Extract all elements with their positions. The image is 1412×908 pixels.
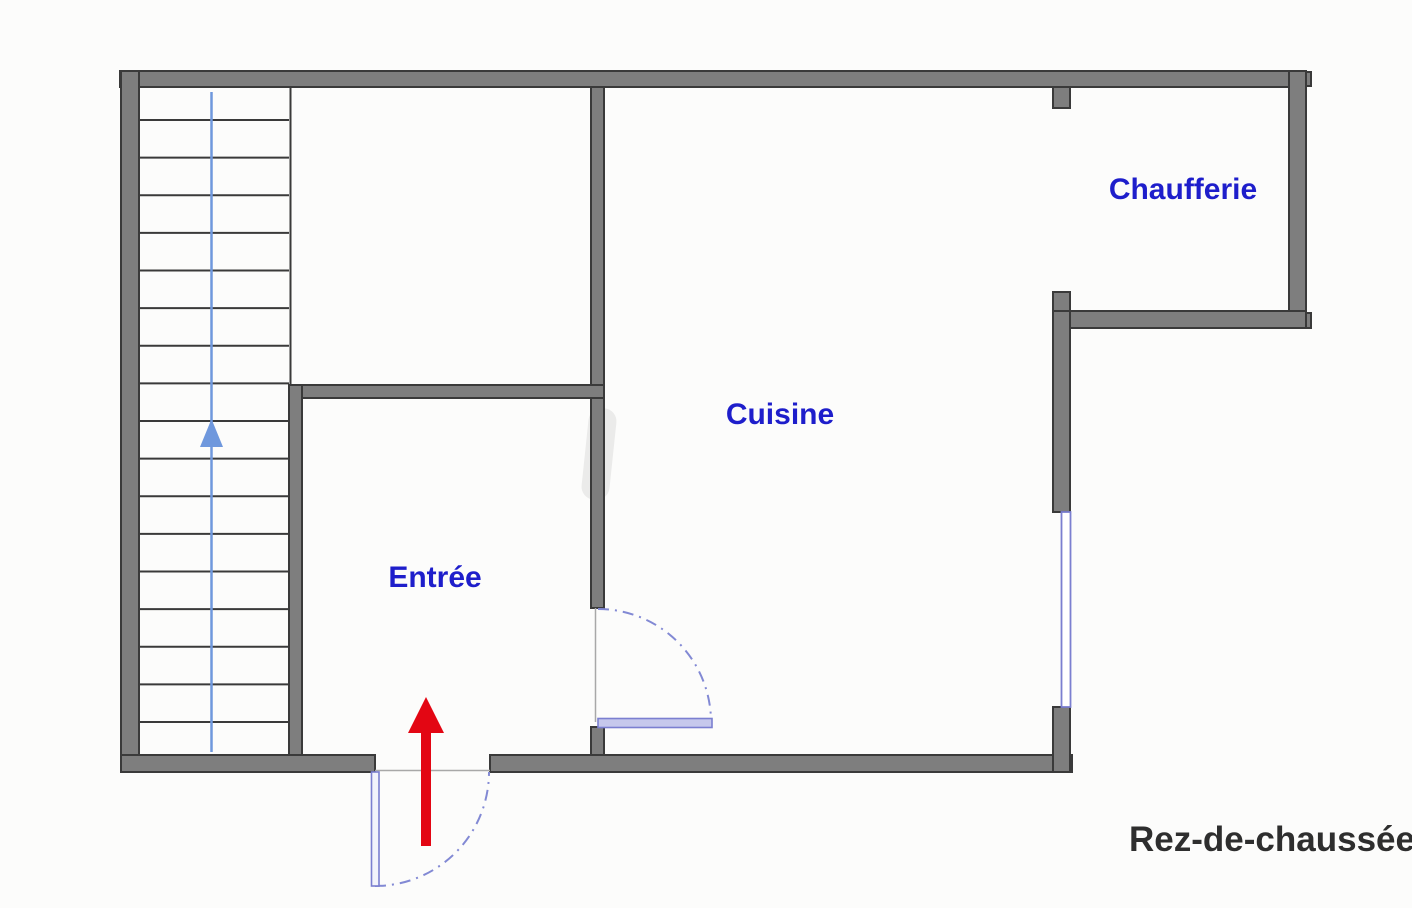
entrance-door-swing-arc [375, 772, 489, 886]
wall-stub-chaufferie-bottom [1053, 292, 1070, 311]
wall-bottom-left-segment [121, 755, 375, 772]
cuisine-door [598, 609, 712, 728]
staircase [139, 88, 291, 752]
window [1062, 512, 1071, 707]
floor-plan-drawing [0, 0, 1412, 908]
wall-divider-entree-cuisine [591, 87, 604, 608]
wall-stub-chaufferie-top [1053, 87, 1070, 108]
cuisine-door-swing-arc [598, 609, 711, 722]
entrance-door-leaf [372, 772, 380, 886]
wall-right-cap-top [1306, 72, 1311, 86]
wall-stairs-east [289, 385, 302, 755]
floor-plan-canvas: Entrée Cuisine Chaufferie Rez-de-chaussé… [0, 0, 1412, 908]
wall-chaufferie-bottom [1053, 311, 1306, 328]
wall-top [120, 71, 1306, 87]
wall-bottom-right-segment [490, 755, 1072, 772]
wall-entree-north [289, 385, 604, 398]
wall-divider-stub-bottom [591, 727, 604, 755]
entrance-arrow-shaft [421, 732, 431, 846]
room-label-entree: Entrée [310, 561, 560, 594]
stair-up-arrow-icon [200, 419, 223, 447]
entrance-arrow [408, 697, 444, 846]
room-label-cuisine: Cuisine [655, 398, 905, 431]
floor-title: Rez-de-chaussée [1112, 821, 1412, 860]
wall-cuisine-right-lower [1053, 707, 1070, 772]
stair-treads [139, 120, 289, 722]
wall-left [121, 71, 139, 772]
entrance-arrow-head [408, 697, 444, 733]
room-label-chaufferie: Chaufferie [1058, 173, 1308, 206]
wall-cuisine-right-upper [1053, 311, 1070, 512]
cuisine-door-leaf [598, 719, 712, 728]
